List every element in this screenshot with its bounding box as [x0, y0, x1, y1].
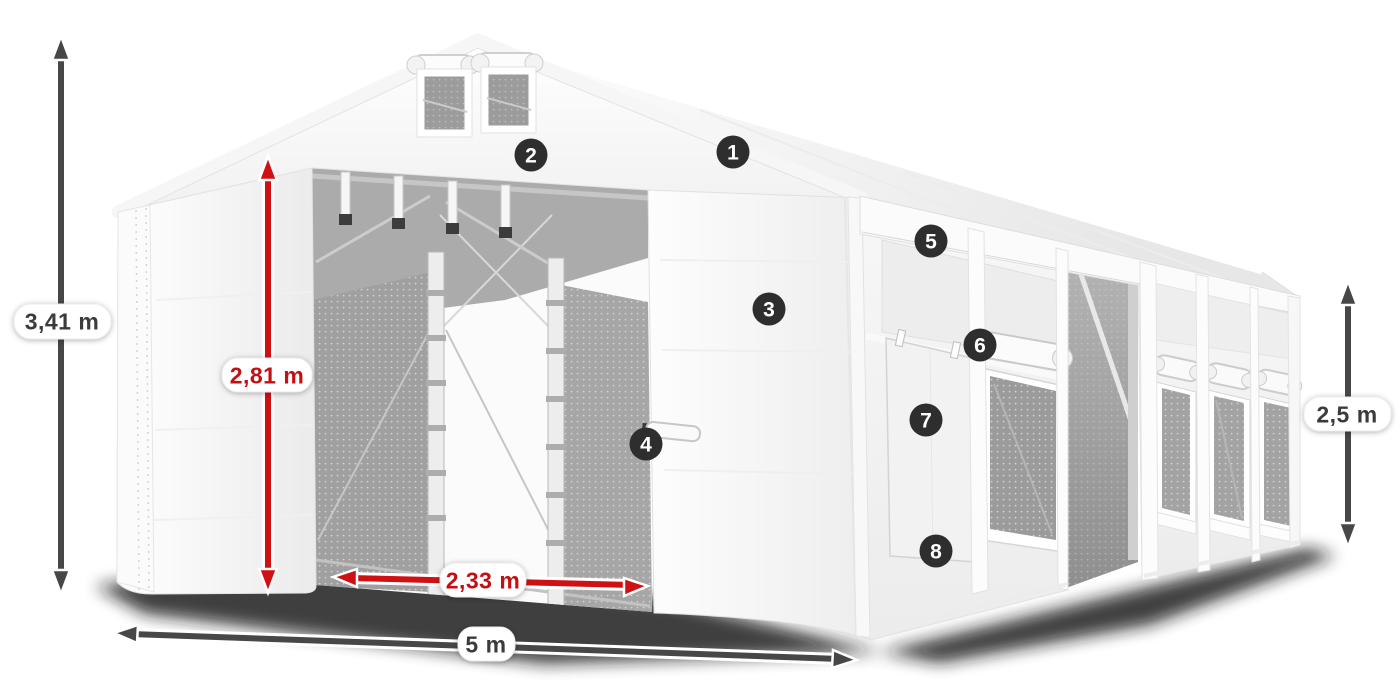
- callout-badge-1[interactable]: 1: [717, 136, 750, 169]
- door-width-label: 2,33 m: [446, 567, 521, 593]
- callout-badge-2[interactable]: 2: [515, 139, 548, 172]
- gable-vent-left: [407, 55, 479, 137]
- callout-number-4: 4: [640, 434, 652, 457]
- callout-badge-6[interactable]: 6: [964, 329, 997, 362]
- callout-number-7: 7: [920, 410, 932, 433]
- callout-badge-4[interactable]: 4: [630, 428, 663, 461]
- overall-width-label: 5 m: [465, 631, 506, 657]
- callout-number-3: 3: [763, 299, 775, 322]
- door-height-label: 2,81 m: [230, 362, 305, 388]
- front-right-door-panel: [641, 190, 878, 640]
- callout-number-6: 6: [974, 335, 986, 358]
- side-door-flap: [886, 330, 976, 562]
- tent-interior-front: [305, 160, 660, 620]
- overall-height-label: 3,41 m: [25, 308, 100, 334]
- callout-number-5: 5: [925, 231, 937, 254]
- callout-badge-7[interactable]: 7: [910, 404, 943, 437]
- callout-badge-8[interactable]: 8: [920, 535, 953, 568]
- callout-number-8: 8: [930, 541, 942, 564]
- callout-number-1: 1: [727, 142, 739, 165]
- dimension-overall-height: 3,41 m: [14, 36, 111, 594]
- gable-vent-right: [471, 53, 543, 133]
- callout-badge-5[interactable]: 5: [915, 225, 948, 258]
- side-height-label: 2,5 m: [1316, 401, 1377, 427]
- dimension-side-height: 2,5 m: [1304, 281, 1391, 547]
- tent-diagram-illustration: 1 2 3 4 5 6 7 8 3,41 m: [0, 0, 1400, 700]
- callout-number-2: 2: [525, 145, 537, 168]
- callout-badge-3[interactable]: 3: [753, 293, 786, 326]
- tent-diagram-stage: 1 2 3 4 5 6 7 8 3,41 m: [0, 0, 1400, 700]
